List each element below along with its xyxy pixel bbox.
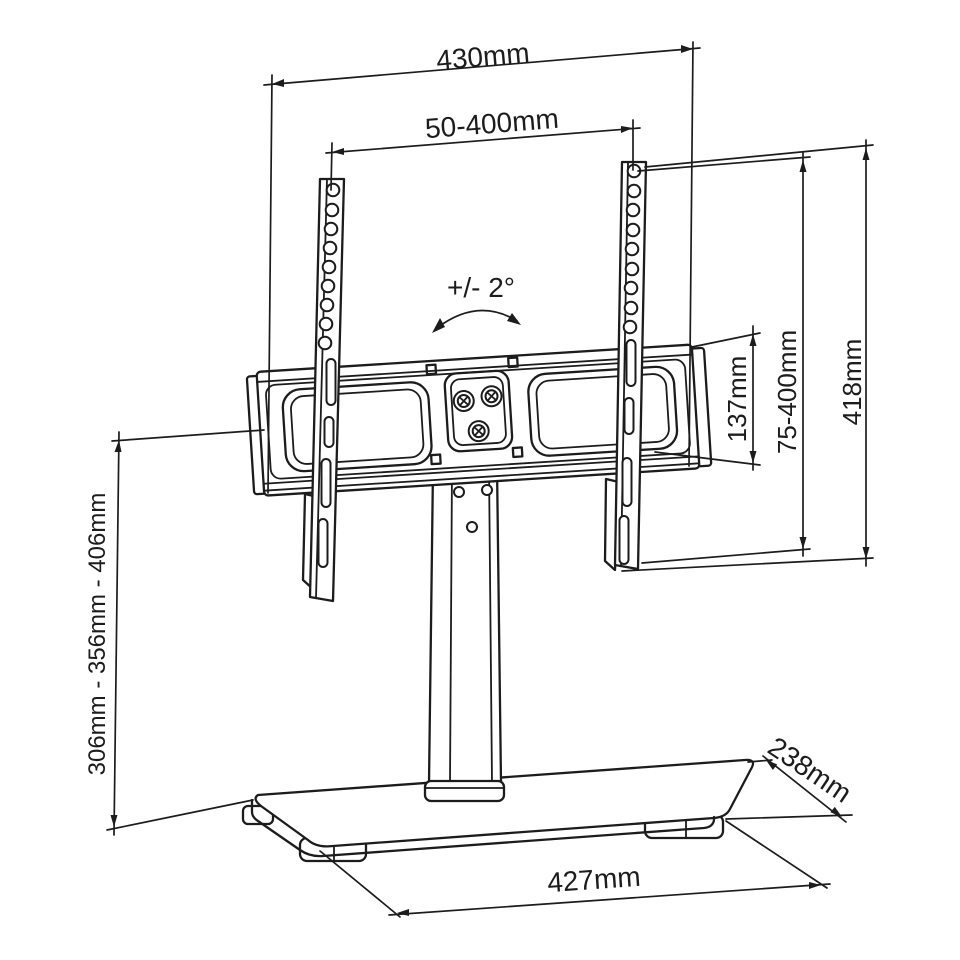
stand-height-label: 306mm - 356mm - 406mm: [84, 493, 111, 776]
tv-stand-diagram: 430mm 50-400mm +/- 2° 137mm 75-400mm: [0, 0, 960, 960]
diagram-svg: 430mm 50-400mm +/- 2° 137mm 75-400mm: [0, 0, 960, 960]
column-base-collar: [425, 781, 504, 801]
bracket-width-label: 430mm: [435, 37, 531, 76]
screw: [468, 420, 489, 441]
plate-height-label: 137mm: [722, 356, 752, 443]
vesa-width-label: 50-400mm: [424, 103, 560, 144]
swivel-annotation: +/- 2°: [432, 272, 521, 333]
rail-height-label: 418mm: [837, 339, 867, 426]
screw: [481, 386, 502, 407]
screw: [453, 390, 474, 411]
column-hole: [454, 487, 464, 497]
dimension-stand-height: 306mm - 356mm - 406mm: [84, 430, 264, 835]
stand-column: [425, 466, 504, 801]
swivel-angle-label: +/- 2°: [447, 272, 515, 303]
vesa-height-label: 75-400mm: [772, 330, 802, 454]
dimension-vesa-width: 50-400mm: [326, 103, 640, 190]
swivel-arrow-icon: [432, 311, 521, 333]
base-width-label: 427mm: [546, 861, 641, 898]
base-depth-label: 238mm: [762, 731, 857, 809]
vesa-rail-right: [615, 162, 646, 569]
column-hole: [482, 485, 492, 495]
vesa-rail-left: [310, 179, 344, 601]
column-hole: [467, 522, 477, 532]
